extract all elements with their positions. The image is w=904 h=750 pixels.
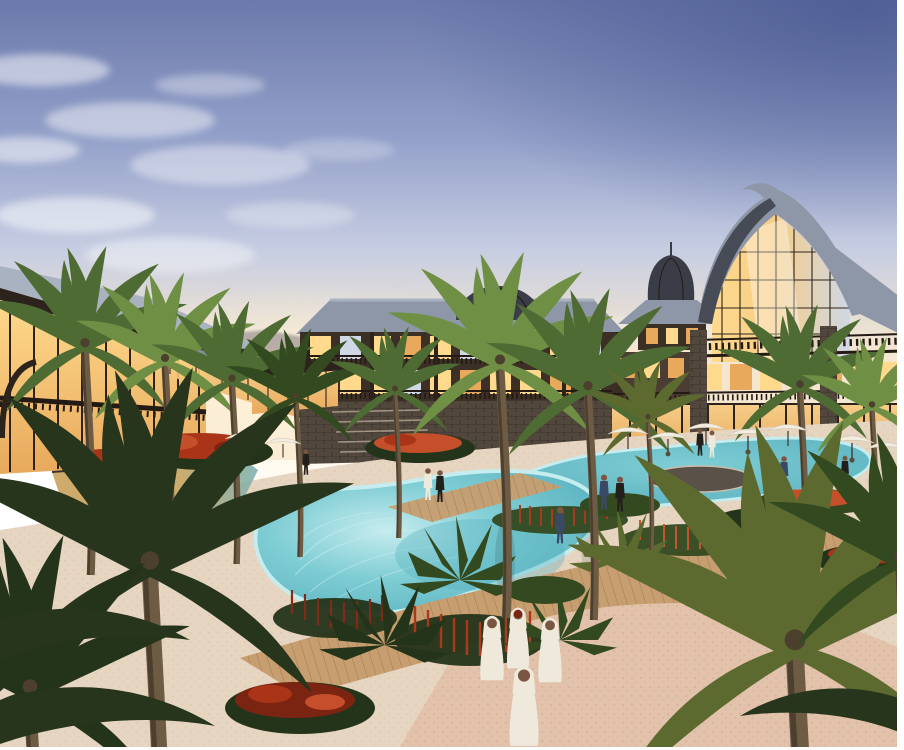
resort-rendering-image: Resort rendering at dusk — lagoon pools,…	[0, 0, 904, 750]
scene-canvas: Resort rendering at dusk — lagoon pools,…	[0, 0, 904, 750]
flower-bed	[225, 682, 375, 734]
flower-bed	[365, 433, 475, 463]
right-border	[897, 0, 904, 750]
